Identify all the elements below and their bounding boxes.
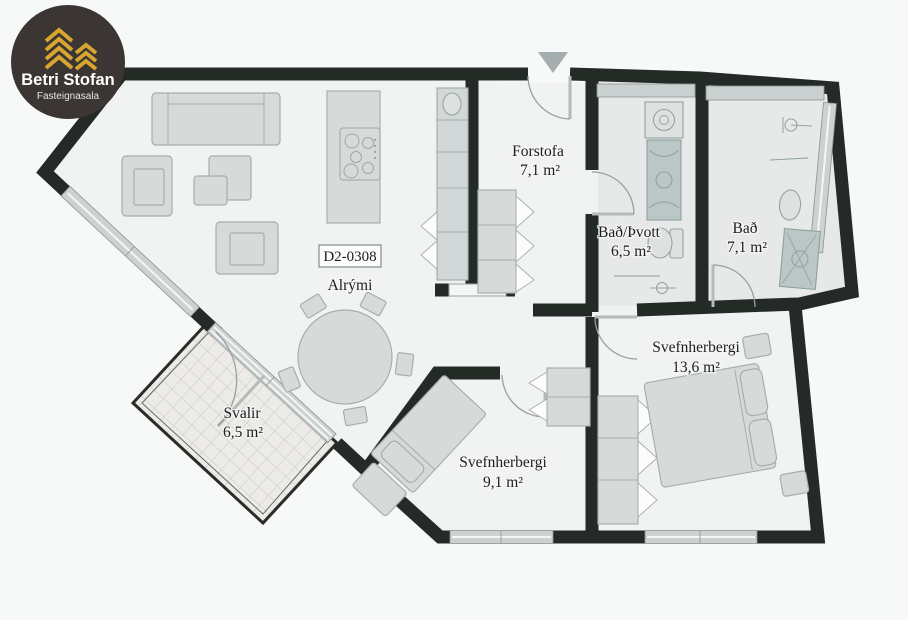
room-area-bad-thvott: 6,5 m² — [611, 243, 651, 260]
floorplan-page: Forstofa 7,1 m² Bað/Þvott 6,5 m² Bað 7,1… — [0, 0, 908, 620]
wardrobe — [598, 396, 657, 524]
washing-machine — [645, 102, 683, 138]
room-label-bad-thvott: Bað/Þvott — [598, 224, 661, 241]
duct-shaft — [597, 84, 695, 97]
shower — [779, 229, 820, 290]
bedroom-small-window — [450, 531, 553, 544]
duct-shaft — [706, 86, 824, 100]
room-label-svalir: Svalir — [223, 405, 261, 422]
sofa — [152, 93, 280, 145]
room-label-alrymi: Alrými — [328, 277, 373, 294]
unit-code: D2-0308 — [323, 249, 376, 265]
bedroom-big-window — [645, 531, 757, 544]
floorplan-drawing: Forstofa 7,1 m² Bað/Þvott 6,5 m² Bað 7,1… — [0, 0, 908, 620]
kitchen-island — [327, 91, 380, 223]
logo: Betri Stofan Fasteignasala — [11, 5, 125, 119]
room-label-svefnherbergi-small: Svefnherbergi — [459, 454, 547, 471]
nightstand — [780, 470, 809, 496]
room-area-svefnherbergi-big: 13,6 m² — [672, 359, 720, 376]
room-area-svefnherbergi-small: 9,1 m² — [483, 474, 523, 491]
shower — [647, 140, 681, 220]
room-area-bad: 7,1 m² — [727, 239, 767, 256]
room-label-svefnherbergi-big: Svefnherbergi — [652, 339, 740, 356]
armchair — [216, 222, 278, 274]
nightstand — [742, 333, 771, 359]
armchair — [122, 156, 172, 216]
room-label-bad: Bað — [733, 220, 758, 237]
logo-tagline: Fasteignasala — [37, 91, 100, 102]
entry-closet — [478, 190, 534, 293]
logo-brand: Betri Stofan — [21, 71, 115, 89]
room-area-forstofa: 7,1 m² — [520, 162, 560, 179]
room-label-forstofa: Forstofa — [512, 143, 564, 160]
room-area-svalir: 6,5 m² — [223, 424, 263, 441]
